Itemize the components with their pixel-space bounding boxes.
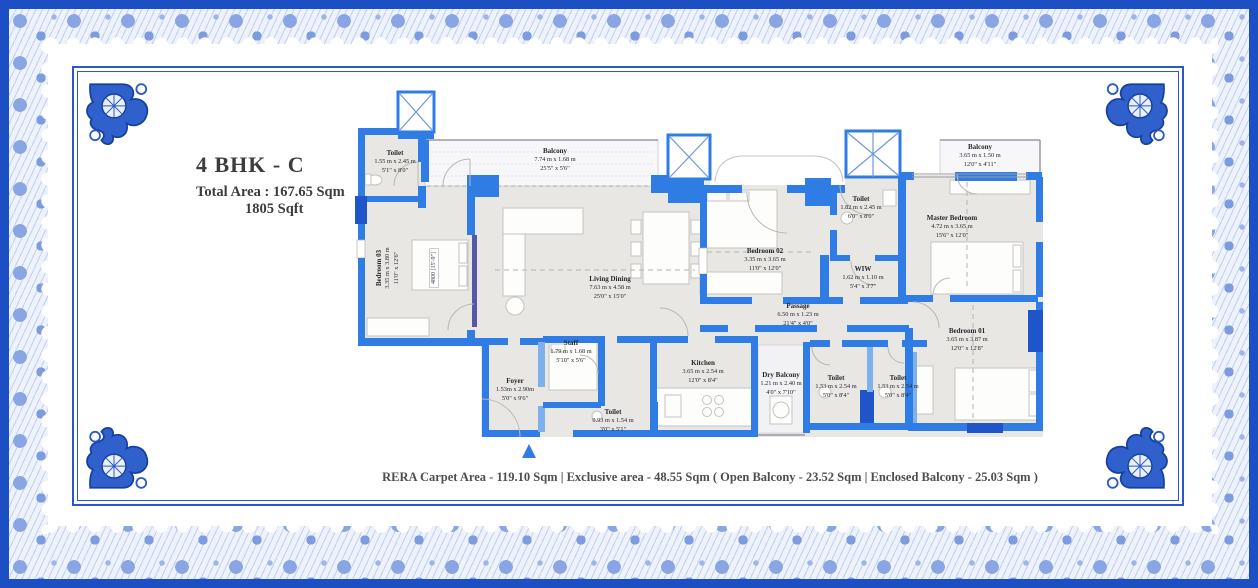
room-label-balcony-top-right: Balcony3.65 m x 1.50 m12'0" x 4'11" [959, 143, 1000, 169]
room-label-toilet-small: Toilet0.93 m x 1.54 m3'0" x 5'1" [592, 408, 633, 434]
corner-flourish-icon [86, 422, 156, 492]
room-label-toilet-bottom-1: Toilet1.53 m x 2.54 m5'0" x 8'4" [815, 374, 856, 400]
room-label-bedroom-01: Bedroom 013.65 m x 3.87 m12'0" x 12'8" [946, 327, 987, 353]
scallop-edge-bottom [40, 526, 1218, 538]
room-label-living-dining: Living Dining7.63 m x 4.58 m25'0" x 15'0… [589, 275, 630, 301]
floor-plan: Toilet1.55 m x 2.45 m5'1" x 8'0" Balcony… [355, 90, 1065, 462]
room-label-foyer: Foyer1.53m x 2.90m5'0" x 9'6" [496, 377, 534, 403]
room-label-passage: Passage6.50 m x 1.23 m21'4" x 4'0" [777, 302, 818, 328]
total-area-sqft: 1805 Sqft [245, 201, 345, 218]
total-area-line: Total Area : 167.65 Sqm [196, 184, 345, 201]
rera-area-statement: RERA Carpet Area - 119.10 Sqm | Exclusiv… [355, 470, 1065, 485]
room-label-master-bedroom: Master Bedroom4.72 m x 3.65 m15'6" x 12'… [927, 214, 977, 240]
scallop-edge-top [40, 32, 1218, 44]
room-label-toilet-bottom-2: Toilet1.53 m x 2.54 m5'0" x 8'4" [877, 374, 918, 400]
corner-flourish-icon [1098, 80, 1168, 150]
room-label-dry-balcony: Dry Balcony1.21 m x 2.40 m4'0" x 7'10" [760, 371, 801, 397]
room-label-bedroom-03: Bedroom 033.35 m x 3.80 m11'0" x 12'6" [375, 247, 401, 288]
floor-plan-page: 4 BHK - C Total Area : 167.65 Sqm 1805 S… [0, 0, 1258, 588]
scallop-edge-left [36, 36, 48, 534]
room-label-toilet-master: Toilet1.82 m x 2.45 m6'0" x 8'0" [840, 195, 881, 221]
room-label-bedroom-02: Bedroom 023.35 m x 3.65 m11'0" x 12'0" [744, 247, 785, 273]
room-label-toilet-top-left: Toilet1.55 m x 2.45 m5'1" x 8'0" [374, 149, 415, 175]
room-label-balcony-top: Balcony7.74 m x 1.68 m25'5" x 5'6" [534, 147, 575, 173]
room-label-wiw: WIW1.62 m x 1.10 m5'4" x 3'7" [842, 265, 883, 291]
unit-title-block: 4 BHK - C Total Area : 167.65 Sqm 1805 S… [196, 152, 345, 218]
room-label-staff: Staff1.79 m x 1.68 m5'10" x 5'6" [550, 339, 591, 365]
scallop-edge-right [1212, 36, 1224, 534]
corner-flourish-icon [86, 80, 156, 150]
unit-name: 4 BHK - C [196, 152, 345, 178]
corner-flourish-icon [1098, 422, 1168, 492]
dimension-label: 4800 [15'-9"] [429, 248, 439, 288]
room-label-kitchen: Kitchen3.65 m x 2.54 m12'0" x 8'4" [682, 359, 723, 385]
